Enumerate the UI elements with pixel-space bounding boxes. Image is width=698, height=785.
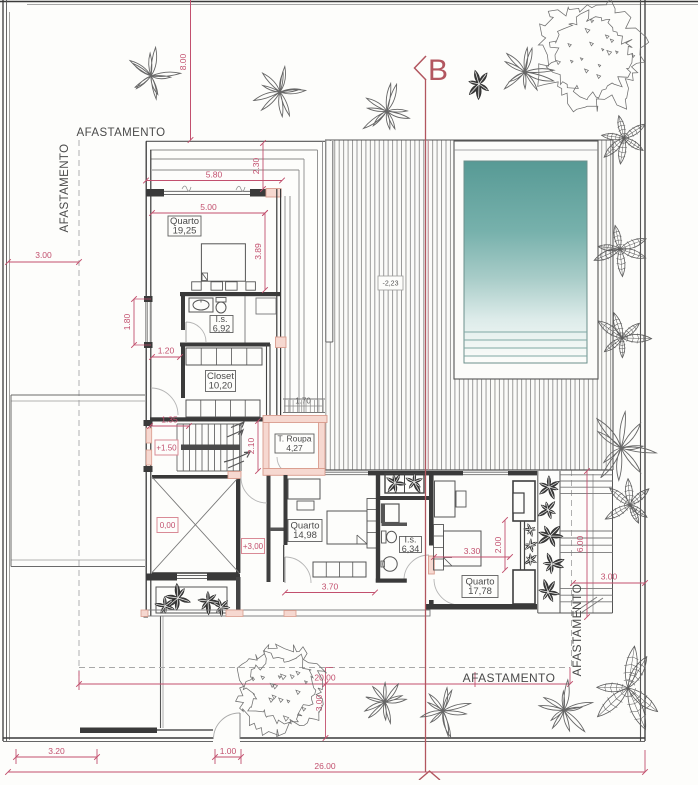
svg-text:3.00: 3.00 xyxy=(35,250,52,260)
svg-text:5.00: 5.00 xyxy=(200,202,217,212)
svg-text:6.00: 6.00 xyxy=(575,535,585,552)
svg-text:1.20: 1.20 xyxy=(158,346,175,356)
svg-text:AFASTAMENTO: AFASTAMENTO xyxy=(463,671,556,685)
svg-text:3.89: 3.89 xyxy=(253,243,263,260)
svg-text:AFASTAMENTO: AFASTAMENTO xyxy=(570,584,584,677)
svg-text:2.10: 2.10 xyxy=(246,437,256,454)
svg-text:3.70: 3.70 xyxy=(322,582,339,592)
svg-text:14,98: 14,98 xyxy=(293,530,317,541)
svg-text:B: B xyxy=(428,54,448,87)
svg-text:4,27: 4,27 xyxy=(286,443,303,453)
svg-text:AFASTAMENTO: AFASTAMENTO xyxy=(59,144,71,233)
svg-text:+1.50: +1.50 xyxy=(156,444,177,453)
svg-text:1.80: 1.80 xyxy=(122,313,132,330)
svg-text:8.00: 8.00 xyxy=(178,53,188,70)
svg-text:2.00: 2.00 xyxy=(493,536,503,553)
svg-text:2.30: 2.30 xyxy=(251,157,261,174)
svg-text:1.35: 1.35 xyxy=(161,415,178,425)
svg-text:26.00: 26.00 xyxy=(314,761,336,771)
svg-text:17,78: 17,78 xyxy=(468,586,492,597)
svg-text:0,00: 0,00 xyxy=(160,521,176,530)
svg-text:3.00: 3.00 xyxy=(601,572,618,582)
svg-text:3.30: 3.30 xyxy=(464,546,481,556)
svg-text:10,20: 10,20 xyxy=(209,380,233,391)
svg-text:5.80: 5.80 xyxy=(206,170,223,180)
svg-text:19,25: 19,25 xyxy=(173,225,197,236)
svg-text:-2,23: -2,23 xyxy=(383,281,399,288)
svg-text:1.70: 1.70 xyxy=(295,397,311,406)
svg-text:+3,00: +3,00 xyxy=(243,542,264,551)
svg-text:3.20: 3.20 xyxy=(48,746,65,756)
svg-text:1.00: 1.00 xyxy=(220,746,237,756)
svg-text:AFASTAMENTO: AFASTAMENTO xyxy=(77,127,166,139)
svg-text:6,34: 6,34 xyxy=(402,544,420,554)
svg-text:6,92: 6,92 xyxy=(213,323,231,333)
